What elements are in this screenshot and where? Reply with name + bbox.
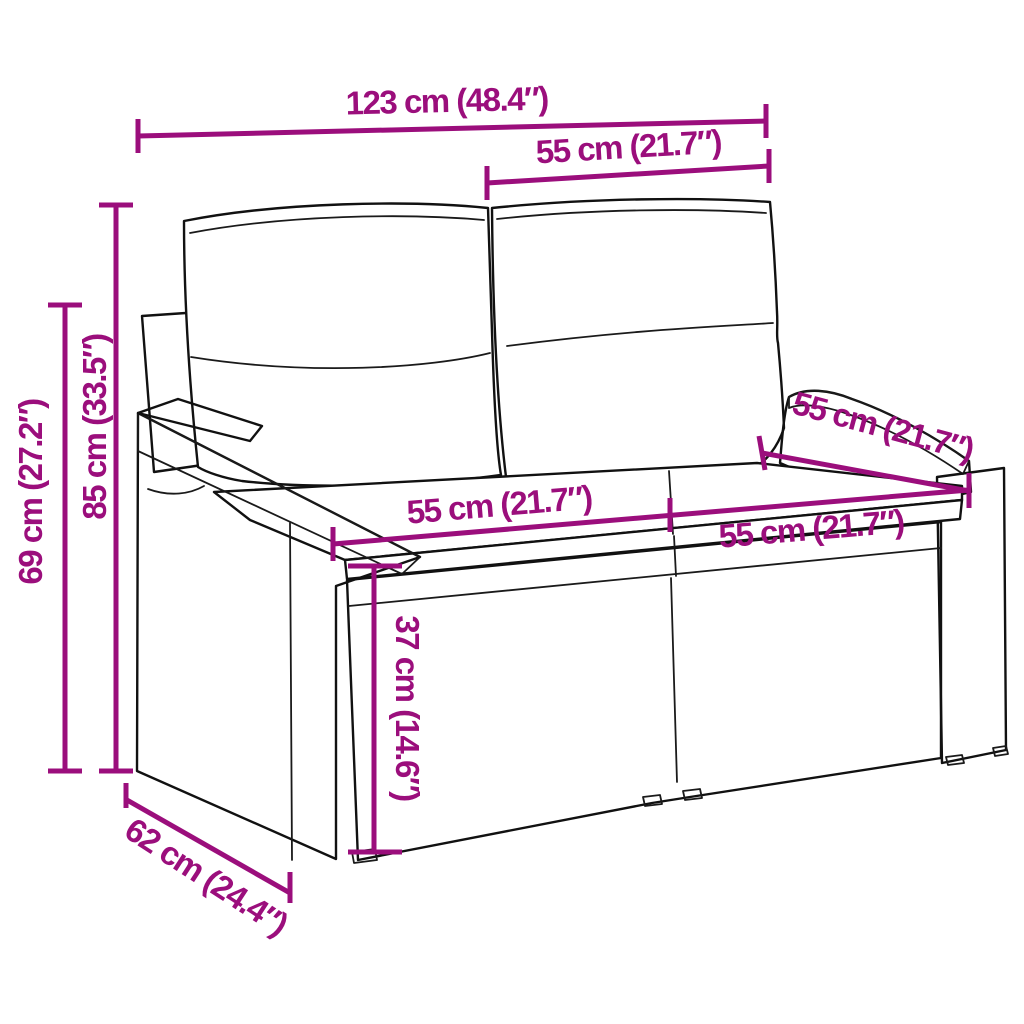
dimension-overall-height: 85 cm (33.5″): [76, 205, 133, 771]
dimension-label-back-post-height: 69 cm (27.2″): [12, 399, 49, 585]
product-dimension-diagram: 123 cm (48.4″) 55 cm (21.7″) 85 cm (33.5…: [0, 0, 1024, 1024]
garden-sofa-dimension-drawing: 123 cm (48.4″) 55 cm (21.7″) 85 cm (33.5…: [0, 0, 1024, 1024]
back-cushion-right: [492, 199, 784, 477]
base-seam: [671, 578, 677, 782]
back-cushion-left: [148, 204, 501, 494]
dimension-label-seat-depth: 55 cm (21.7″): [789, 384, 978, 468]
dimension-label-overall-height: 85 cm (33.5″): [76, 334, 113, 520]
dimension-seat-height: 37 cm (14.6″): [348, 566, 426, 852]
dimension-label-overall-width: 123 cm (48.4″): [345, 80, 548, 122]
dimension-overall-depth: 62 cm (24.4″): [118, 783, 294, 943]
dimension-backrest-cushion-width: 55 cm (21.7″): [487, 123, 769, 200]
base-front: [347, 522, 941, 860]
dimension-label-seat-height: 37 cm (14.6″): [389, 615, 426, 801]
dimension-back-post-height: 69 cm (27.2″): [12, 305, 82, 771]
dimension-label-backrest-cushion-width: 55 cm (21.7″): [535, 123, 723, 171]
